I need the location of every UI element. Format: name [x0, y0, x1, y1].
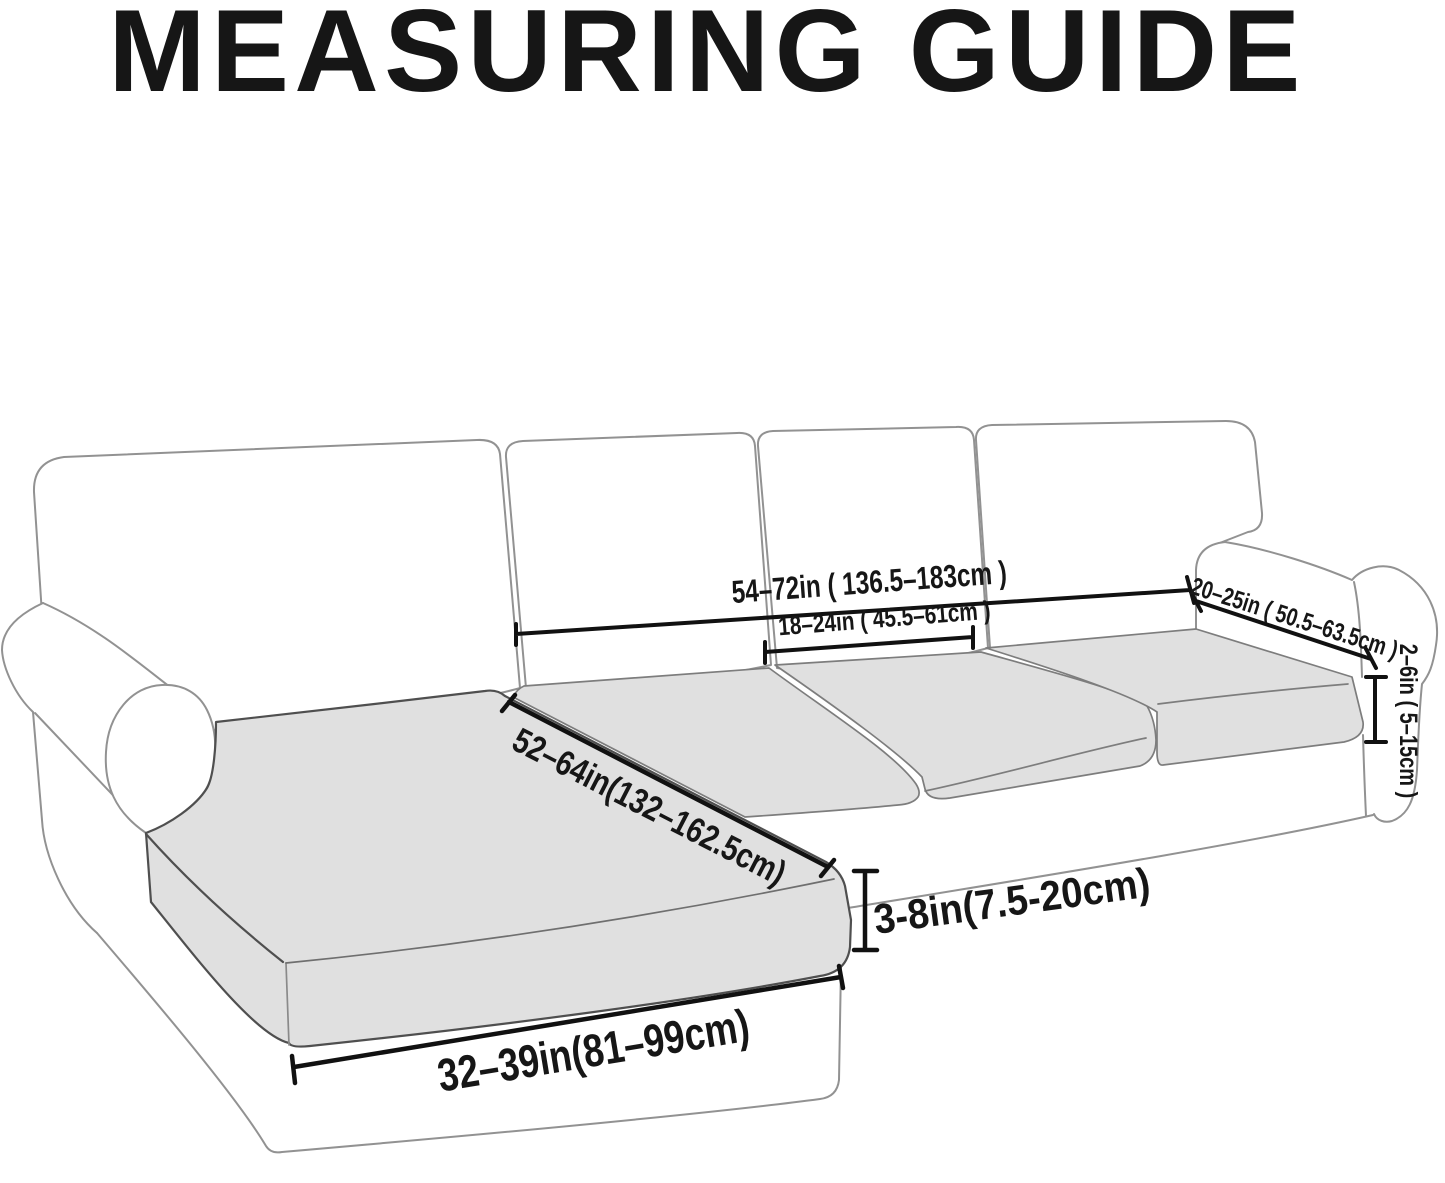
svg-text:MEASURING GUIDE: MEASURING GUIDE: [108, 0, 1306, 116]
svg-text:2–6in ( 5–15cm ): 2–6in ( 5–15cm ): [1394, 644, 1422, 798]
